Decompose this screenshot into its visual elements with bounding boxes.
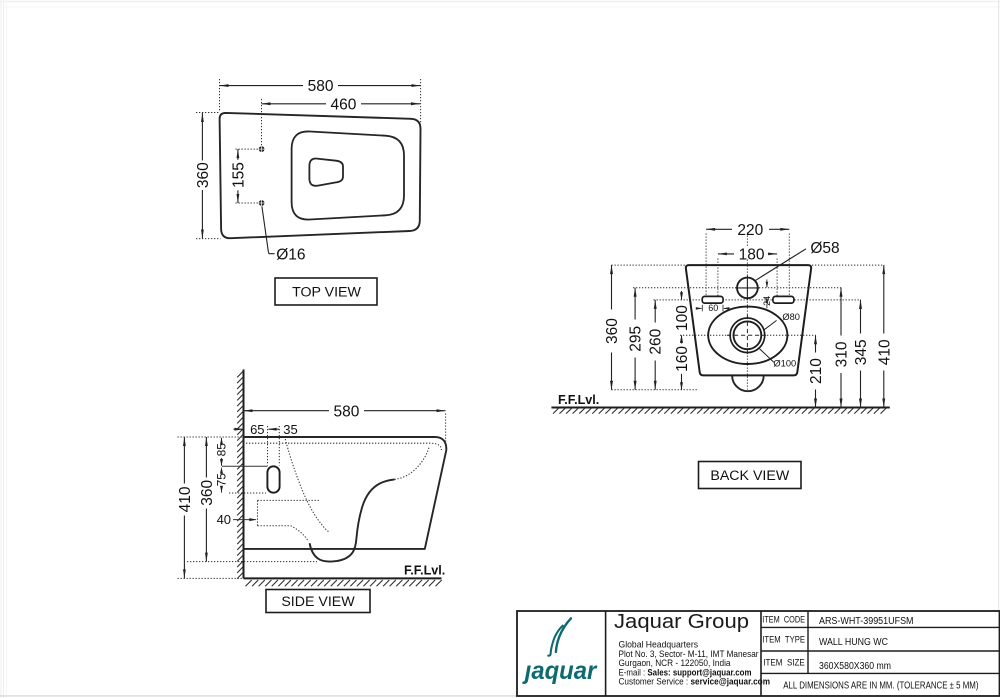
svg-text:360: 360 <box>604 318 621 344</box>
svg-text:580: 580 <box>333 403 359 420</box>
svg-text:580: 580 <box>308 78 334 95</box>
svg-text:24: 24 <box>762 296 772 306</box>
svg-text:345: 345 <box>853 339 870 365</box>
svg-text:310: 310 <box>834 341 851 367</box>
svg-text:260: 260 <box>648 328 665 354</box>
svg-text:Ø80: Ø80 <box>782 312 800 322</box>
svg-text:ALL DIMENSIONS ARE IN MM. (TOL: ALL DIMENSIONS ARE IN MM. (TOLERANCE ± 5… <box>783 680 978 691</box>
svg-text:360: 360 <box>199 479 216 505</box>
svg-text:ITEM CODE: ITEM CODE <box>762 613 805 624</box>
svg-text:220: 220 <box>737 222 763 239</box>
svg-text:155: 155 <box>230 162 247 188</box>
svg-text:360X580X360 mm: 360X580X360 mm <box>819 661 891 672</box>
svg-text:40: 40 <box>217 512 231 527</box>
svg-text:ITEM SIZE: ITEM SIZE <box>763 657 805 668</box>
svg-text:180: 180 <box>739 246 765 263</box>
svg-text:100: 100 <box>674 305 691 331</box>
svg-text:410: 410 <box>877 339 894 365</box>
svg-text:Ø16: Ø16 <box>276 247 305 264</box>
svg-text:210: 210 <box>808 358 825 384</box>
svg-text:75: 75 <box>215 473 229 487</box>
svg-text:TOP VIEW: TOP VIEW <box>292 284 361 300</box>
svg-text:Customer Service : service@jaq: Customer Service : service@jaquar.com <box>619 677 771 687</box>
svg-text:60: 60 <box>708 303 718 313</box>
svg-text:295: 295 <box>628 326 645 352</box>
svg-text:ITEM TYPE: ITEM TYPE <box>762 634 805 645</box>
svg-text:SIDE VIEW: SIDE VIEW <box>281 594 355 610</box>
svg-text:F.F.Lvl.: F.F.Lvl. <box>558 393 599 407</box>
svg-text:35: 35 <box>283 422 297 437</box>
svg-text:Jaquar Group: Jaquar Group <box>614 611 749 633</box>
svg-text:160: 160 <box>674 346 691 372</box>
svg-text:460: 460 <box>330 96 356 113</box>
svg-text:BACK VIEW: BACK VIEW <box>710 468 789 484</box>
svg-text:ȷaquar: ȷaquar <box>522 657 598 685</box>
svg-text:Ø100: Ø100 <box>773 358 796 368</box>
svg-text:410: 410 <box>177 486 194 512</box>
svg-text:85: 85 <box>215 443 229 457</box>
svg-text:F.F.Lvl.: F.F.Lvl. <box>404 563 445 577</box>
svg-text:360: 360 <box>195 162 212 188</box>
svg-text:65: 65 <box>250 422 264 437</box>
svg-text:Global Headquarters: Global Headquarters <box>619 639 699 649</box>
svg-text:WALL HUNG WC: WALL HUNG WC <box>819 637 888 648</box>
svg-text:ARS-WHT-39951UFSM: ARS-WHT-39951UFSM <box>819 616 914 627</box>
svg-text:Ø58: Ø58 <box>810 240 839 257</box>
